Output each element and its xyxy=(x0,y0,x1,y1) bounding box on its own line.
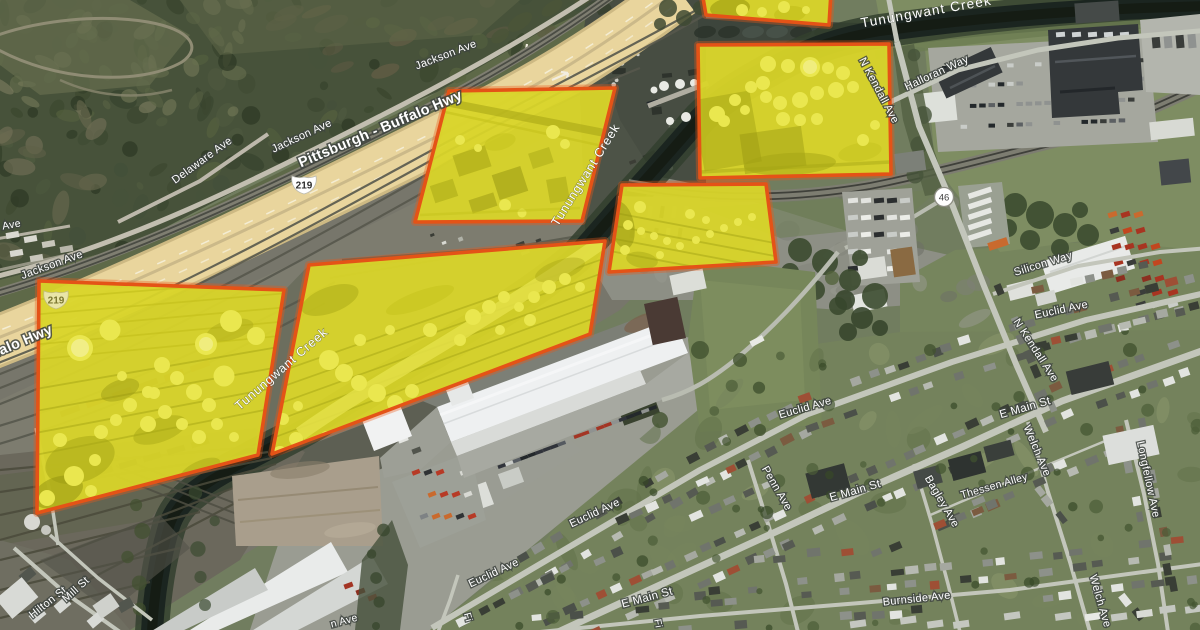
svg-text:Fi: Fi xyxy=(651,618,663,629)
svg-text:46: 46 xyxy=(939,193,950,204)
svg-text:219: 219 xyxy=(296,180,313,191)
svg-text:219: 219 xyxy=(48,295,65,306)
